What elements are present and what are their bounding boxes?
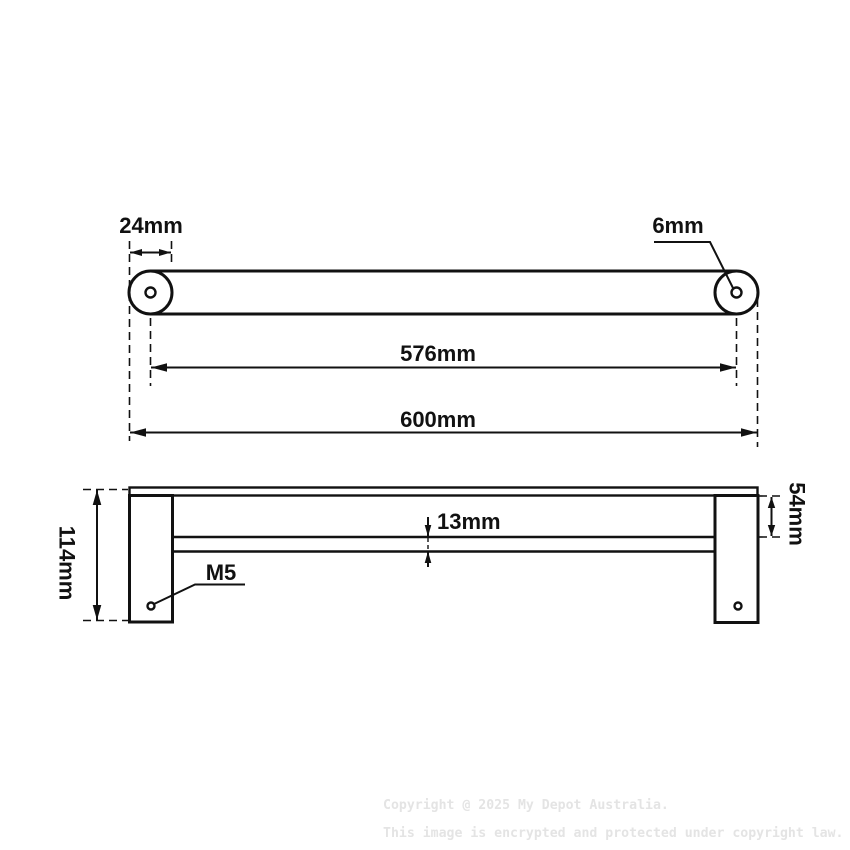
left-bracket-screw-hole: [148, 603, 155, 610]
dim-label-top-drop: 54mm: [785, 482, 810, 546]
arrowhead-114mm-top: [93, 490, 102, 505]
towel-rail-dimension-drawing: 24mm 6mm 576mm 600mm: [0, 0, 850, 850]
dim-label-overall-height: 114mm: [55, 526, 80, 601]
arrowhead-54mm-bottom: [768, 525, 775, 536]
arrowhead-13mm-down: [425, 525, 432, 537]
dim-label-end-post-width: 24mm: [119, 213, 183, 238]
dim-label-rail-thickness: 13mm: [437, 509, 501, 534]
right-bracket-screw-hole: [735, 603, 742, 610]
technical-drawing-canvas: 24mm 6mm 576mm 600mm: [0, 0, 850, 850]
dim-label-screw-thread: M5: [206, 560, 237, 585]
watermark-line-1: Copyright @ 2025 My Depot Australia.: [383, 797, 669, 813]
arrowhead-114mm-bottom: [93, 605, 102, 620]
arrowhead-54mm-top: [768, 497, 775, 508]
arrowhead-13mm-up: [425, 552, 432, 564]
right-screw-hole: [732, 288, 742, 298]
leader-line-6mm: [654, 242, 733, 288]
leader-line-m5: [154, 585, 245, 605]
dim-label-overall-length: 600mm: [400, 407, 476, 432]
side-view: 114mm 54mm 13mm M5: [55, 482, 810, 622]
arrowhead-600mm-right: [741, 428, 757, 436]
left-screw-hole: [146, 288, 156, 298]
watermark-line-2: This image is encrypted and protected un…: [383, 825, 844, 841]
arrowhead-576mm-left: [151, 363, 167, 371]
dim-label-hole-centre-distance: 576mm: [400, 341, 476, 366]
arrowhead-24mm-right: [159, 249, 171, 256]
watermark: Copyright @ 2025 My Depot Australia. Thi…: [383, 797, 844, 841]
top-view: 24mm 6mm 576mm 600mm: [119, 213, 758, 447]
arrowhead-24mm-left: [130, 249, 142, 256]
right-end-post-circle: [715, 271, 758, 314]
top-plate: [130, 488, 758, 496]
dim-label-hole-diameter: 6mm: [652, 213, 703, 238]
left-end-post-circle: [129, 271, 172, 314]
arrowhead-600mm-left: [130, 428, 146, 436]
arrowhead-576mm-right: [720, 363, 736, 371]
